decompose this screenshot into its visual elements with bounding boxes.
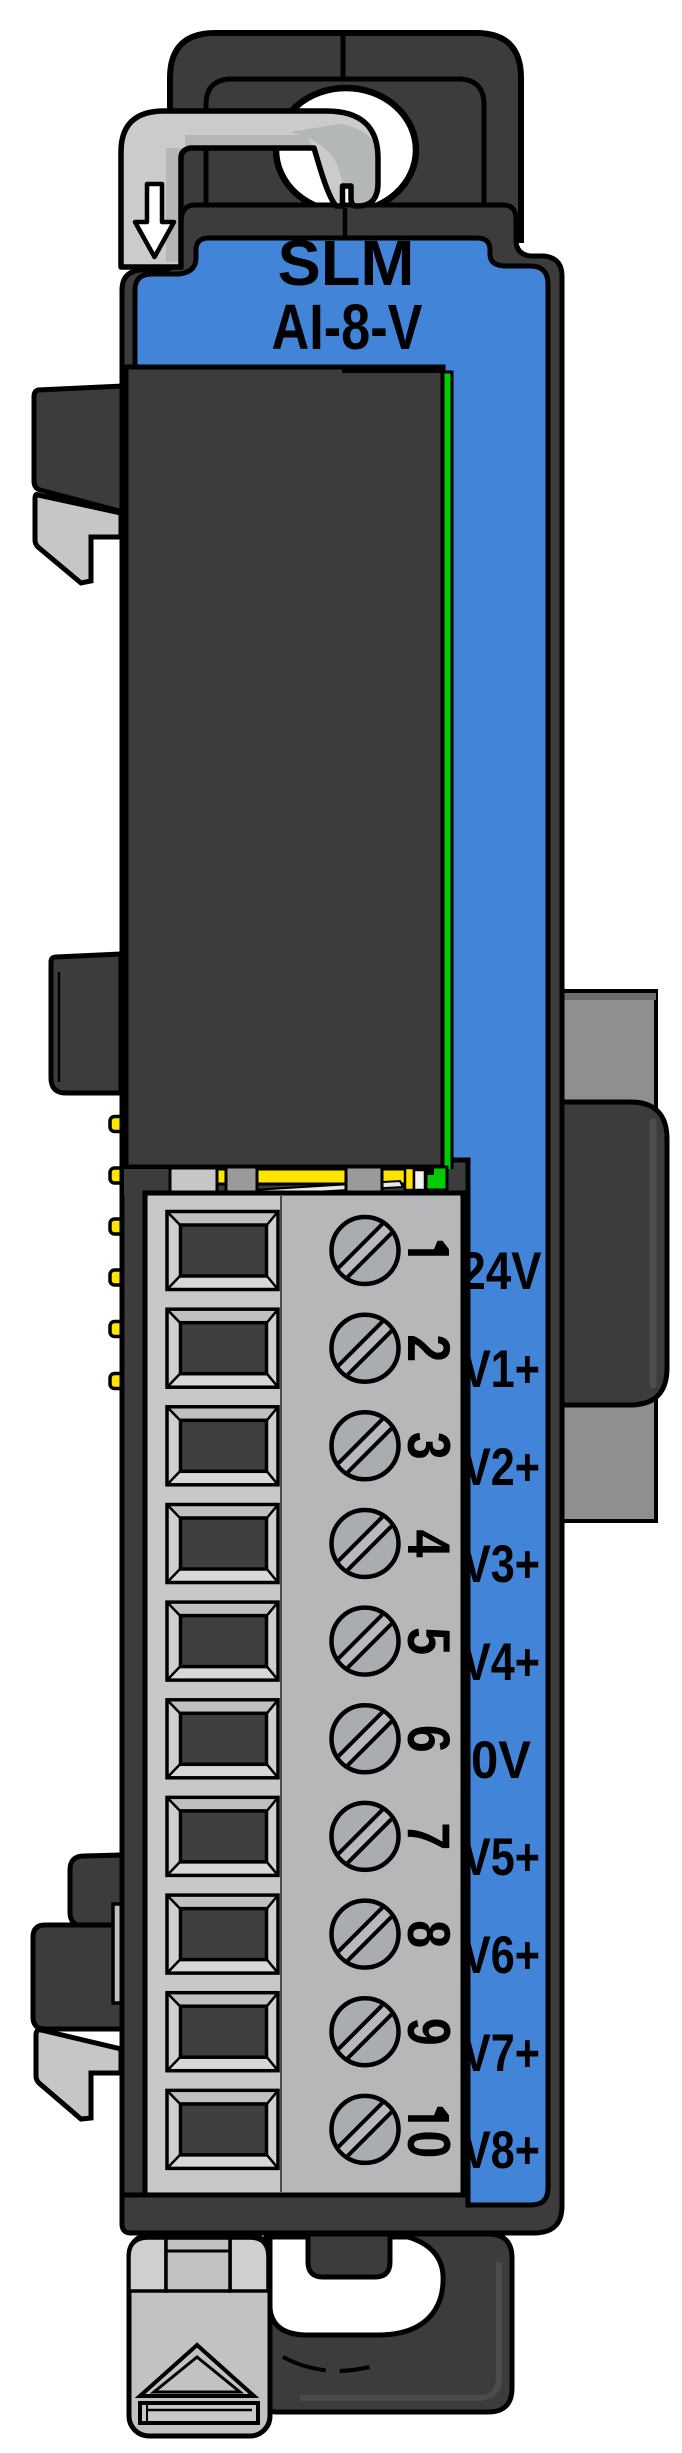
svg-text:V3+: V3+: [462, 1535, 540, 1594]
svg-text:6: 6: [395, 1725, 462, 1753]
svg-text:8: 8: [395, 1920, 462, 1948]
svg-text:V8+: V8+: [462, 2121, 540, 2180]
svg-text:4: 4: [395, 1530, 462, 1559]
svg-text:SLM: SLM: [278, 227, 415, 299]
svg-text:AI-8-V: AI-8-V: [272, 291, 423, 363]
svg-text:V4+: V4+: [462, 1633, 540, 1692]
svg-text:V1+: V1+: [462, 1340, 540, 1399]
svg-text:24V: 24V: [461, 1242, 542, 1301]
svg-text:V7+: V7+: [462, 2024, 540, 2083]
svg-text:5: 5: [395, 1627, 462, 1655]
svg-text:9: 9: [395, 2018, 462, 2046]
svg-text:V6+: V6+: [462, 1926, 540, 1985]
svg-text:0V: 0V: [471, 1731, 531, 1790]
svg-text:V5+: V5+: [462, 1828, 540, 1887]
svg-text:7: 7: [395, 1822, 462, 1850]
svg-text:0: 0: [395, 2130, 462, 2158]
svg-text:2: 2: [395, 1334, 462, 1362]
svg-text:V2+: V2+: [462, 1438, 540, 1497]
svg-text:3: 3: [395, 1432, 462, 1460]
